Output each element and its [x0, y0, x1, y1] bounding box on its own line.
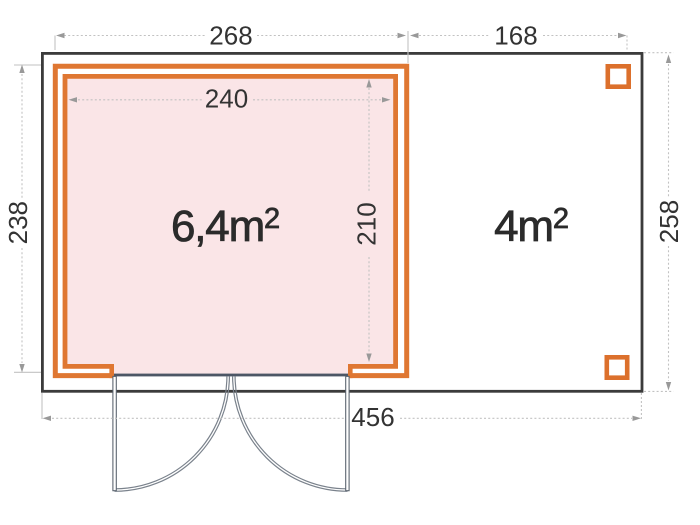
svg-text:168: 168	[494, 21, 537, 51]
svg-text:240: 240	[205, 83, 248, 113]
svg-text:456: 456	[351, 402, 394, 432]
svg-text:258: 258	[654, 200, 684, 243]
svg-text:238: 238	[3, 201, 33, 244]
svg-text:210: 210	[352, 202, 382, 245]
svg-text:6,4m2: 6,4m2	[171, 202, 279, 251]
svg-text:268: 268	[209, 21, 252, 51]
